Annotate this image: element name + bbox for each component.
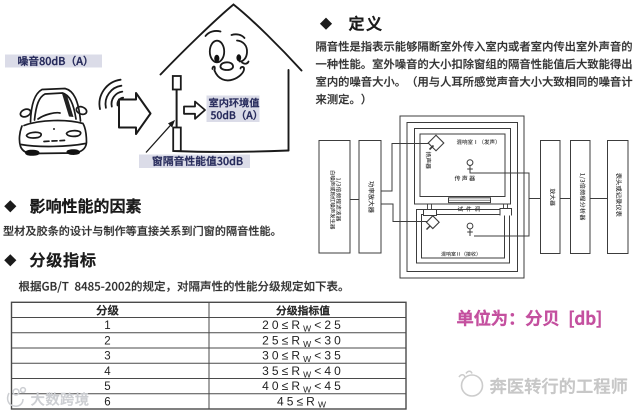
svg-text:4: 4: [104, 366, 111, 378]
svg-text:20≤RW<25: 20≤RW<25: [262, 318, 344, 333]
svg-text:1: 1: [104, 320, 110, 332]
svg-text:30≤RW<35: 30≤RW<35: [262, 349, 344, 364]
svg-text:35≤RW<40: 35≤RW<40: [262, 364, 344, 379]
svg-text:2: 2: [104, 335, 110, 347]
svg-text:45≤RW: 45≤RW: [277, 394, 329, 409]
svg-text:40≤RW<45: 40≤RW<45: [262, 379, 344, 394]
svg-text:3: 3: [104, 351, 110, 363]
svg-text:5: 5: [104, 381, 110, 393]
svg-text:6: 6: [104, 396, 110, 408]
svg-text:25≤RW<30: 25≤RW<30: [262, 333, 344, 348]
